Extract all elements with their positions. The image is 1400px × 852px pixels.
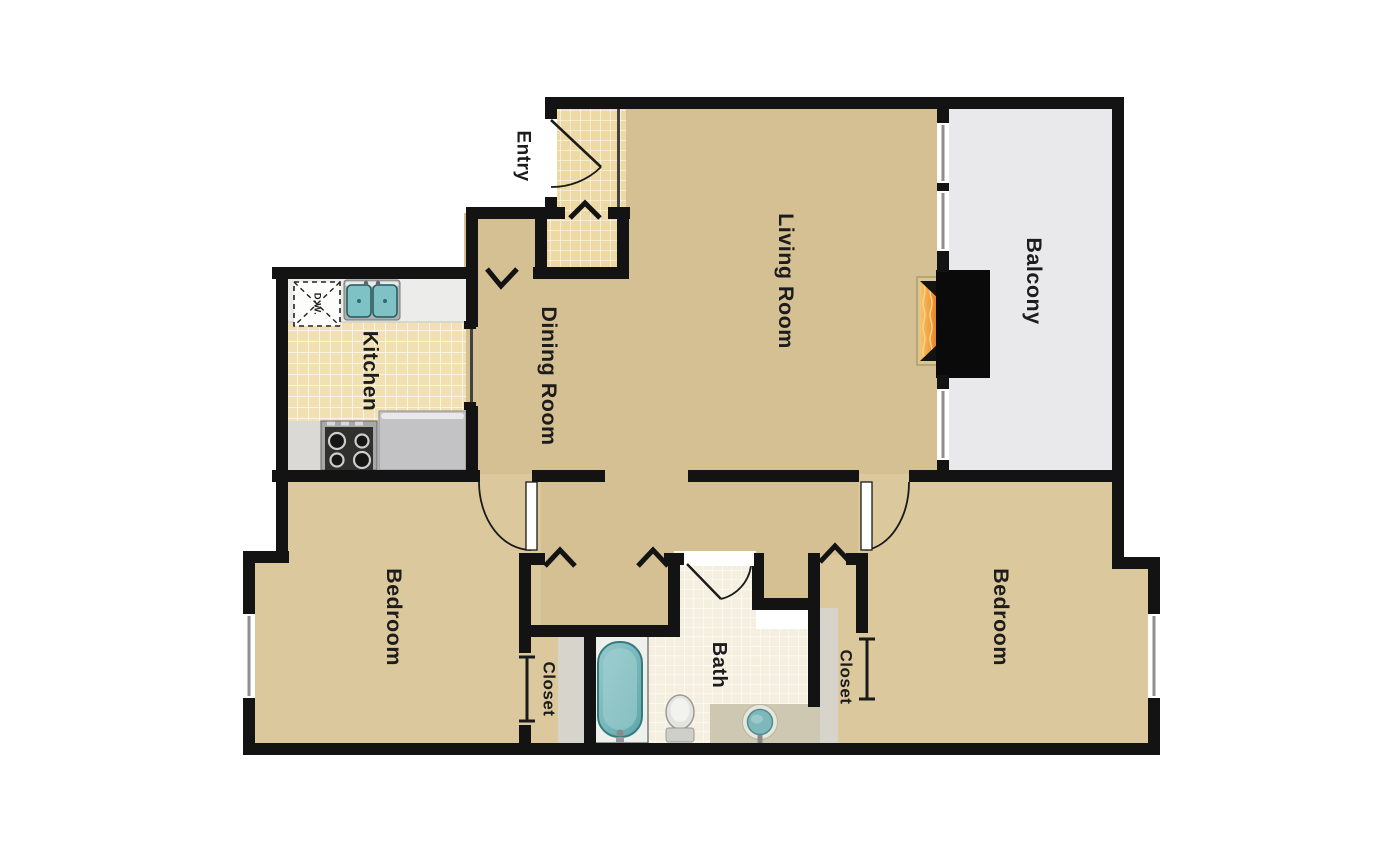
kitchen-passthrough-divider xyxy=(470,327,473,406)
bedroom-left-window xyxy=(243,614,255,698)
balcony-window xyxy=(937,191,949,251)
dishwasher-label: D.W. xyxy=(312,293,323,316)
balcony-window xyxy=(937,389,949,460)
room-label-closet-left: Closet xyxy=(540,662,559,717)
room-label-bath: Bath xyxy=(708,642,730,688)
dishwasher-icon: D.W. xyxy=(294,282,340,326)
hall-alcove-floor xyxy=(519,555,680,631)
room-label-bedroom-right: Bedroom xyxy=(989,568,1013,666)
bedroom-right-window xyxy=(1148,614,1160,698)
floor-plan-page: D.W. xyxy=(0,0,1400,852)
bathtub-icon xyxy=(592,635,648,743)
stove-icon xyxy=(321,421,377,470)
fireplace-icon xyxy=(917,270,990,378)
refrigerator-icon xyxy=(379,411,466,470)
room-label-kitchen: Kitchen xyxy=(359,331,382,412)
entry-living-divider xyxy=(617,109,620,207)
bedroom-right-floor xyxy=(858,474,1112,751)
balcony-window xyxy=(937,123,949,183)
closet-shelf-right xyxy=(818,608,838,745)
room-label-dining: Dining Room xyxy=(537,306,561,445)
room-label-closet-right: Closet xyxy=(837,650,856,705)
room-label-living: Living Room xyxy=(774,213,798,349)
bedroom-right-floor xyxy=(1108,561,1154,751)
room-label-entry: Entry xyxy=(513,130,534,181)
closet-shelf-left xyxy=(558,635,586,749)
floor-plan-canvas: D.W. xyxy=(0,0,1400,852)
toilet-icon xyxy=(666,695,694,742)
room-label-bedroom-left: Bedroom xyxy=(382,568,406,666)
kitchen-sink-icon xyxy=(344,280,400,320)
bathroom-sink-icon xyxy=(710,704,820,744)
room-label-balcony: Balcony xyxy=(1022,237,1046,324)
